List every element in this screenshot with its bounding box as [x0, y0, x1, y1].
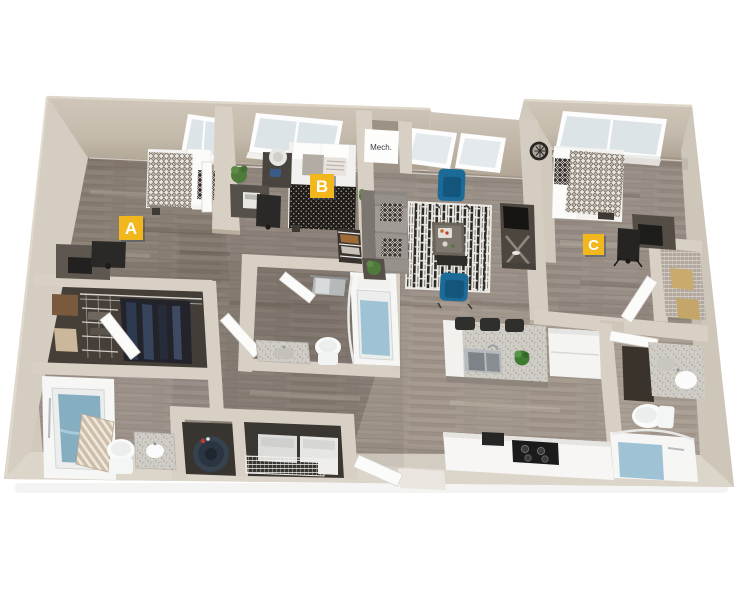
svg-text:A: A — [125, 219, 137, 238]
svg-text:C: C — [588, 237, 599, 254]
svg-text:Mech.: Mech. — [370, 143, 392, 152]
svg-text:B: B — [316, 177, 328, 196]
